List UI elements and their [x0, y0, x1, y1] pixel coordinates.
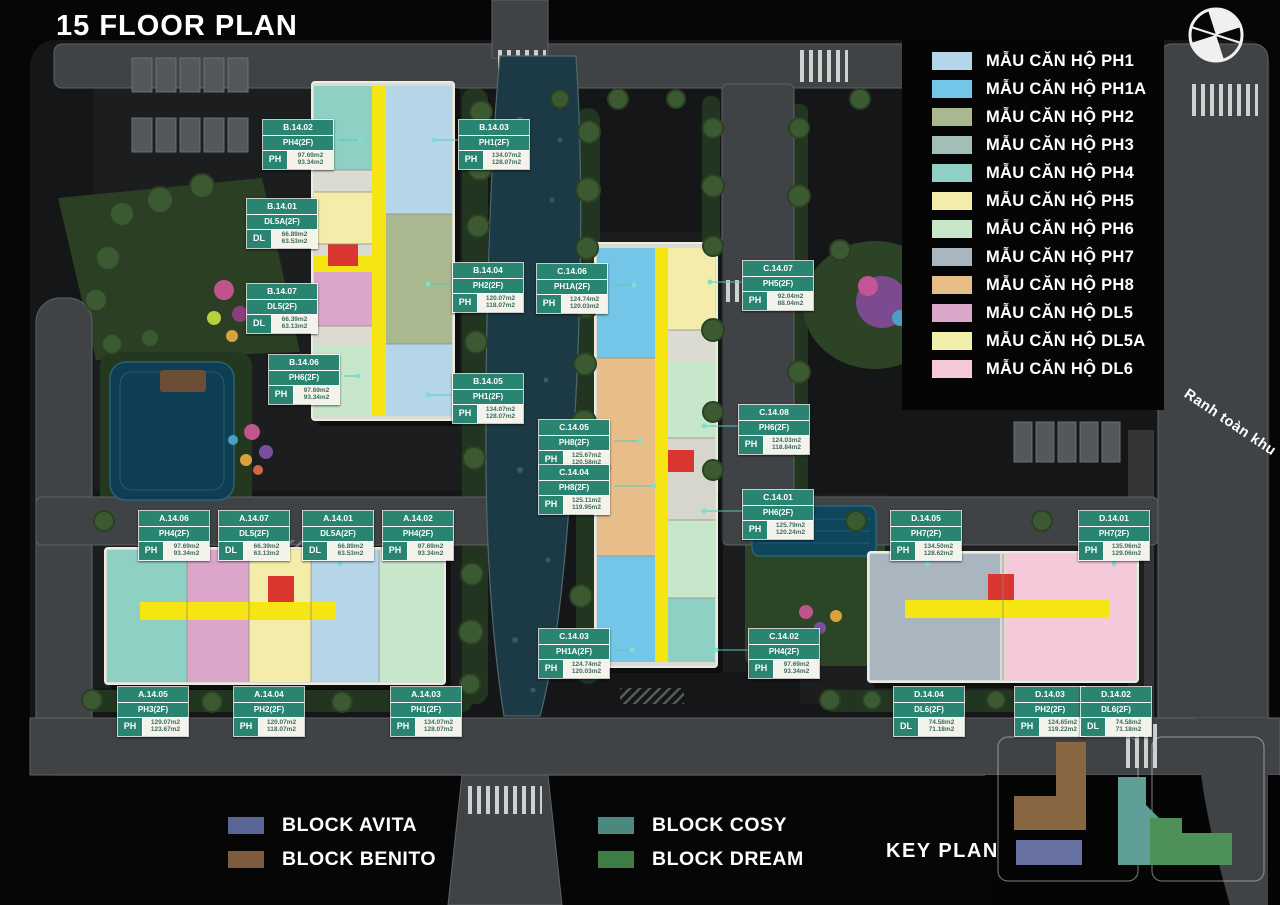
unit-label-B.14.06: B.14.06 PH6(2F) PH 97.69m2 93.34m2 [268, 354, 340, 405]
unit-code: D.14.03 [1015, 687, 1085, 703]
page-title: 15 FLOOR PLAN [56, 10, 298, 43]
unit-areas: 134.50m2 128.62m2 [916, 542, 961, 560]
unit-code: A.14.03 [391, 687, 461, 703]
unit-type: PH6(2F) [743, 506, 813, 521]
unit-type: DL6(2F) [1081, 703, 1151, 718]
legend-swatch [932, 136, 972, 154]
unit-code: D.14.05 [891, 511, 961, 527]
unit-areas: 125.79m2 120.24m2 [768, 521, 813, 539]
unit-area-2: 93.34m2 [295, 395, 338, 402]
unit-area-2: 120.03m2 [563, 304, 606, 311]
unit-code: C.14.02 [749, 629, 819, 645]
unit-areas: 125.11m2 119.95m2 [564, 496, 609, 514]
unit-label-C.14.07: C.14.07 PH5(2F) PH 92.04m2 88.04m2 [742, 260, 814, 311]
unit-area-2: 118.07m2 [260, 727, 303, 734]
legend-item-label: MẪU CĂN HỘ DL5A [986, 332, 1145, 351]
unit-area-2: 120.03m2 [565, 669, 608, 676]
block-legend-benito: BLOCK BENITO [228, 850, 436, 868]
legend-item-label: MẪU CĂN HỘ PH3 [986, 136, 1134, 155]
legend-item-label: MẪU CĂN HỘ PH1 [986, 52, 1134, 71]
unit-area-2: 128.62m2 [917, 551, 960, 558]
unit-category: PH [743, 292, 768, 310]
unit-areas: 92.04m2 88.04m2 [768, 292, 813, 310]
unit-type: PH1A(2F) [537, 280, 607, 295]
unit-area-2: 63.13m2 [245, 551, 288, 558]
unit-type: PH4(2F) [263, 136, 333, 151]
legend-item-label: MẪU CĂN HỘ PH7 [986, 248, 1134, 267]
legend-item-label: MẪU CĂN HỘ PH1A [986, 80, 1146, 99]
legend-swatch [932, 80, 972, 98]
legend-item-label: MẪU CĂN HỘ PH2 [986, 108, 1134, 127]
unit-code: A.14.07 [219, 511, 289, 527]
unit-code: B.14.05 [453, 374, 523, 390]
unit-areas: 124.74m2 120.03m2 [562, 295, 607, 313]
unit-type: PH5(2F) [743, 277, 813, 292]
unit-area-2: 128.07m2 [479, 414, 522, 421]
tree-icon [576, 237, 598, 259]
unit-code: C.14.01 [743, 490, 813, 506]
tree-icon [850, 89, 870, 109]
tree-icon [332, 692, 352, 712]
tree-icon [147, 187, 173, 213]
unit-label-D.14.02: D.14.02 DL6(2F) DL 74.58m2 71.18m2 [1080, 686, 1152, 737]
legend-item-label: MẪU CĂN HỘ DL5 [986, 304, 1133, 323]
legend-swatch [932, 164, 972, 182]
unit-code: A.14.04 [234, 687, 304, 703]
unit-category: DL [247, 315, 272, 333]
unit-code: B.14.01 [247, 199, 317, 215]
unit-category: PH [453, 405, 478, 423]
tree-icon [551, 90, 569, 108]
unit-type: PH7(2F) [1079, 527, 1149, 542]
unit-category: PH [391, 718, 416, 736]
unit-areas: 124.03m2 118.84m2 [764, 436, 809, 454]
legend-item-ph2: MẪU CĂN HỘ PH2 [932, 108, 1146, 126]
blocks-legend-right: BLOCK COSY BLOCK DREAM [598, 816, 804, 868]
unit-type: DL5(2F) [247, 300, 317, 315]
unit-category: PH [891, 542, 916, 560]
unit-area-2: 129.06m2 [1105, 551, 1148, 558]
unit-code: B.14.04 [453, 263, 523, 279]
unit-category: DL [219, 542, 244, 560]
legend-item-dl5: MẪU CĂN HỘ DL5 [932, 304, 1146, 322]
unit-type: DL6(2F) [894, 703, 964, 718]
unit-type: PH1A(2F) [539, 645, 609, 660]
tree-icon [467, 215, 489, 237]
tree-icon [110, 202, 134, 226]
unit-label-C.14.04: C.14.04 PH8(2F) PH 125.11m2 119.95m2 [538, 464, 610, 515]
unit-code: A.14.02 [383, 511, 453, 527]
legend-swatch [932, 360, 972, 378]
tree-icon [460, 674, 480, 694]
unit-category: PH [539, 496, 564, 514]
unit-area-2: 88.04m2 [769, 301, 812, 308]
unit-area-2: 128.07m2 [485, 160, 528, 167]
tree-icon [703, 236, 723, 256]
unit-area-2: 63.53m2 [273, 239, 316, 246]
unit-area-2: 93.34m2 [775, 669, 818, 676]
block-legend-cosy: BLOCK COSY [598, 816, 804, 834]
block-avita-building [105, 548, 445, 684]
tree-icon [702, 175, 724, 197]
tree-icon [459, 620, 483, 644]
unit-category: PH [139, 542, 164, 560]
unit-areas: 120.07m2 118.07m2 [478, 294, 523, 312]
unit-label-C.14.01: C.14.01 PH6(2F) PH 125.79m2 120.24m2 [742, 489, 814, 540]
legend-item-ph7: MẪU CĂN HỘ PH7 [932, 248, 1146, 266]
unit-label-A.14.04: A.14.04 PH2(2F) PH 120.07m2 118.07m2 [233, 686, 305, 737]
unit-areas: 66.89m2 63.53m2 [272, 230, 317, 248]
legend-swatch [932, 192, 972, 210]
legend-item-ph5: MẪU CĂN HỘ PH5 [932, 192, 1146, 210]
unit-label-D.14.01: D.14.01 PH7(2F) PH 135.06m2 129.06m2 [1078, 510, 1150, 561]
unit-type: DL5(2F) [219, 527, 289, 542]
unit-area-2: 71.18m2 [920, 727, 963, 734]
unit-code: D.14.02 [1081, 687, 1151, 703]
unit-category: PH [1079, 542, 1104, 560]
unit-label-A.14.02: A.14.02 PH4(2F) PH 97.69m2 93.34m2 [382, 510, 454, 561]
legend-item-ph8: MẪU CĂN HỘ PH8 [932, 276, 1146, 294]
unit-areas: 74.58m2 71.18m2 [1106, 718, 1151, 736]
tree-icon [190, 174, 214, 198]
legend-swatch [932, 276, 972, 294]
tree-icon [574, 353, 596, 375]
unit-code: C.14.05 [539, 420, 609, 436]
unit-area-2: 119.22m2 [1041, 727, 1084, 734]
tree-icon [830, 240, 850, 260]
legend-item-label: MẪU CĂN HỘ PH4 [986, 164, 1134, 183]
unit-areas: 120.07m2 118.07m2 [259, 718, 304, 736]
keyplan-block-avita [1016, 840, 1082, 865]
block-cosy-building [595, 243, 717, 667]
unit-label-B.14.03: B.14.03 PH1(2F) PH 134.07m2 128.07m2 [458, 119, 530, 170]
unit-areas: 66.39m2 63.13m2 [244, 542, 289, 560]
legend-item-ph6: MẪU CĂN HỘ PH6 [932, 220, 1146, 238]
unit-category: PH [453, 294, 478, 312]
pool-deck [160, 370, 206, 392]
tree-icon [85, 289, 107, 311]
apartment-legend: MẪU CĂN HỘ PH1 MẪU CĂN HỘ PH1A MẪU CĂN H… [932, 52, 1146, 378]
tree-icon [987, 691, 1005, 709]
unit-area-2: 93.34m2 [165, 551, 208, 558]
legend-item-label: MẪU CĂN HỘ PH6 [986, 220, 1134, 239]
unit-category: PH [1015, 718, 1040, 736]
tree-icon [703, 118, 723, 138]
legend-item-ph4: MẪU CĂN HỘ PH4 [932, 164, 1146, 182]
unit-type: PH8(2F) [539, 481, 609, 496]
unit-code: C.14.06 [537, 264, 607, 280]
block-legend-label: BLOCK AVITA [282, 814, 417, 837]
unit-code: B.14.02 [263, 120, 333, 136]
unit-label-A.14.07: A.14.07 DL5(2F) DL 66.39m2 63.13m2 [218, 510, 290, 561]
unit-type: PH8(2F) [539, 436, 609, 451]
unit-category: PH [539, 660, 564, 678]
tree-icon [703, 402, 723, 422]
unit-type: PH7(2F) [891, 527, 961, 542]
unit-label-A.14.01: A.14.01 DL5A(2F) DL 66.89m2 63.53m2 [302, 510, 374, 561]
unit-areas: 97.69m2 93.34m2 [288, 151, 333, 169]
unit-type: DL5A(2F) [303, 527, 373, 542]
unit-area-2: 128.07m2 [417, 727, 460, 734]
unit-code: B.14.06 [269, 355, 339, 371]
floor-plan-page: 15 FLOOR PLAN MẪU CĂN HỘ PH1 MẪU CĂN HỘ … [0, 0, 1280, 905]
tree-icon [102, 334, 122, 354]
unit-label-C.14.03: C.14.03 PH1A(2F) PH 124.74m2 120.03m2 [538, 628, 610, 679]
tree-icon [576, 178, 600, 202]
unit-type: PH6(2F) [739, 421, 809, 436]
unit-type: PH3(2F) [118, 703, 188, 718]
legend-item-label: MẪU CĂN HỘ DL6 [986, 360, 1133, 379]
unit-code: C.14.08 [739, 405, 809, 421]
unit-category: PH [234, 718, 259, 736]
unit-category: PH [383, 542, 408, 560]
unit-label-B.14.02: B.14.02 PH4(2F) PH 97.69m2 93.34m2 [262, 119, 334, 170]
legend-swatch [932, 304, 972, 322]
tree-icon [703, 460, 723, 480]
tree-icon [94, 511, 114, 531]
block-legend-swatch [228, 851, 264, 868]
unit-area-2: 93.34m2 [409, 551, 452, 558]
unit-area-2: 71.18m2 [1107, 727, 1150, 734]
unit-code: B.14.07 [247, 284, 317, 300]
unit-areas: 97.69m2 93.34m2 [294, 386, 339, 404]
unit-label-B.14.04: B.14.04 PH2(2F) PH 120.07m2 118.07m2 [452, 262, 524, 313]
unit-label-A.14.03: A.14.03 PH1(2F) PH 134.07m2 128.07m2 [390, 686, 462, 737]
tree-icon [578, 121, 600, 143]
legend-swatch [932, 220, 972, 238]
unit-area-2: 63.13m2 [273, 324, 316, 331]
block-legend-dream: BLOCK DREAM [598, 850, 804, 868]
tree-icon [141, 329, 159, 347]
blocks-legend-left: BLOCK AVITA BLOCK BENITO [228, 816, 436, 868]
unit-category: PH [749, 660, 774, 678]
tree-icon [788, 185, 810, 207]
legend-item-ph3: MẪU CĂN HỘ PH3 [932, 136, 1146, 154]
unit-label-D.14.04: D.14.04 DL6(2F) DL 74.58m2 71.18m2 [893, 686, 965, 737]
tree-icon [863, 691, 881, 709]
unit-category: PH [269, 386, 294, 404]
unit-areas: 134.07m2 128.07m2 [484, 151, 529, 169]
block-legend-label: BLOCK BENITO [282, 848, 436, 871]
key-plan-label: KEY PLAN [886, 840, 999, 863]
unit-areas: 97.69m2 93.34m2 [164, 542, 209, 560]
legend-item-dl5a: MẪU CĂN HỘ DL5A [932, 332, 1146, 350]
legend-swatch [932, 52, 972, 70]
unit-label-B.14.07: B.14.07 DL5(2F) DL 66.39m2 63.13m2 [246, 283, 318, 334]
unit-type: PH6(2F) [269, 371, 339, 386]
tree-icon [570, 585, 592, 607]
unit-category: PH [263, 151, 288, 169]
unit-areas: 135.06m2 129.06m2 [1104, 542, 1149, 560]
unit-code: A.14.05 [118, 687, 188, 703]
unit-type: PH4(2F) [383, 527, 453, 542]
unit-category: PH [537, 295, 562, 313]
tree-icon [1032, 511, 1052, 531]
unit-code: C.14.07 [743, 261, 813, 277]
unit-label-A.14.06: A.14.06 PH4(2F) PH 97.69m2 93.34m2 [138, 510, 210, 561]
unit-label-B.14.05: B.14.05 PH1(2F) PH 134.07m2 128.07m2 [452, 373, 524, 424]
unit-type: PH4(2F) [139, 527, 209, 542]
block-legend-label: BLOCK DREAM [652, 848, 804, 871]
unit-label-C.14.06: C.14.06 PH1A(2F) PH 124.74m2 120.03m2 [536, 263, 608, 314]
unit-category: PH [739, 436, 764, 454]
unit-label-B.14.01: B.14.01 DL5A(2F) DL 66.89m2 63.53m2 [246, 198, 318, 249]
unit-areas: 66.39m2 63.13m2 [272, 315, 317, 333]
tree-icon [789, 118, 809, 138]
legend-swatch [932, 332, 972, 350]
unit-type: PH1(2F) [391, 703, 461, 718]
legend-item-ph1: MẪU CĂN HỘ PH1 [932, 52, 1146, 70]
unit-type: PH1(2F) [459, 136, 529, 151]
unit-code: D.14.01 [1079, 511, 1149, 527]
unit-label-C.14.08: C.14.08 PH6(2F) PH 124.03m2 118.84m2 [738, 404, 810, 455]
tree-icon [667, 90, 685, 108]
legend-item-label: MẪU CĂN HỘ PH8 [986, 276, 1134, 295]
unit-type: PH1(2F) [453, 390, 523, 405]
unit-areas: 66.89m2 63.53m2 [328, 542, 373, 560]
unit-areas: 134.07m2 128.07m2 [478, 405, 523, 423]
block-dream-building [868, 552, 1138, 682]
tree-icon [463, 447, 485, 469]
tree-icon [202, 692, 222, 712]
unit-category: DL [1081, 718, 1106, 736]
unit-type: DL5A(2F) [247, 215, 317, 230]
unit-areas: 129.07m2 123.67m2 [143, 718, 188, 736]
unit-area-2: 123.67m2 [144, 727, 187, 734]
unit-areas: 97.69m2 93.34m2 [408, 542, 453, 560]
unit-areas: 74.58m2 71.18m2 [919, 718, 964, 736]
hatch-zone [620, 688, 684, 704]
unit-areas: 124.74m2 120.03m2 [564, 660, 609, 678]
tree-icon [465, 331, 487, 353]
unit-type: PH2(2F) [234, 703, 304, 718]
legend-item-label: MẪU CĂN HỘ PH5 [986, 192, 1134, 211]
tree-icon [608, 89, 628, 109]
unit-code: A.14.01 [303, 511, 373, 527]
unit-type: PH2(2F) [453, 279, 523, 294]
legend-swatch [932, 248, 972, 266]
unit-label-C.14.05: C.14.05 PH8(2F) PH 125.67m2 120.58m2 [538, 419, 610, 470]
unit-label-D.14.03: D.14.03 PH2(2F) PH 124.65m2 119.22m2 [1014, 686, 1086, 737]
unit-area-2: 93.34m2 [289, 160, 332, 167]
block-legend-label: BLOCK COSY [652, 814, 787, 837]
legend-item-ph1a: MẪU CĂN HỘ PH1A [932, 80, 1146, 98]
unit-code: D.14.04 [894, 687, 964, 703]
unit-label-C.14.02: C.14.02 PH4(2F) PH 97.69m2 93.34m2 [748, 628, 820, 679]
unit-category: DL [247, 230, 272, 248]
unit-label-D.14.05: D.14.05 PH7(2F) PH 134.50m2 128.62m2 [890, 510, 962, 561]
unit-area-2: 119.95m2 [565, 505, 608, 512]
unit-category: PH [118, 718, 143, 736]
block-legend-swatch [598, 817, 634, 834]
unit-category: DL [303, 542, 328, 560]
unit-category: PH [743, 521, 768, 539]
unit-category: DL [894, 718, 919, 736]
tree-icon [82, 690, 102, 710]
unit-code: C.14.03 [539, 629, 609, 645]
legend-swatch [932, 108, 972, 126]
tree-icon [461, 563, 483, 585]
legend-item-dl6: MẪU CĂN HỘ DL6 [932, 360, 1146, 378]
tree-icon [702, 319, 724, 341]
tree-icon [820, 690, 840, 710]
unit-area-2: 63.53m2 [329, 551, 372, 558]
unit-areas: 134.07m2 128.07m2 [416, 718, 461, 736]
block-legend-avita: BLOCK AVITA [228, 816, 436, 834]
tree-icon [788, 361, 810, 383]
unit-label-A.14.05: A.14.05 PH3(2F) PH 129.07m2 123.67m2 [117, 686, 189, 737]
unit-type: PH4(2F) [749, 645, 819, 660]
unit-area-2: 118.84m2 [765, 445, 808, 452]
unit-code: B.14.03 [459, 120, 529, 136]
unit-category: PH [459, 151, 484, 169]
tree-icon [96, 246, 120, 270]
unit-area-2: 118.07m2 [479, 303, 522, 310]
unit-areas: 97.69m2 93.34m2 [774, 660, 819, 678]
block-legend-swatch [598, 851, 634, 868]
unit-type: PH2(2F) [1015, 703, 1085, 718]
unit-code: C.14.04 [539, 465, 609, 481]
tree-icon [846, 511, 866, 531]
unit-area-2: 120.24m2 [769, 530, 812, 537]
block-legend-swatch [228, 817, 264, 834]
unit-code: A.14.06 [139, 511, 209, 527]
unit-areas: 124.65m2 119.22m2 [1040, 718, 1085, 736]
